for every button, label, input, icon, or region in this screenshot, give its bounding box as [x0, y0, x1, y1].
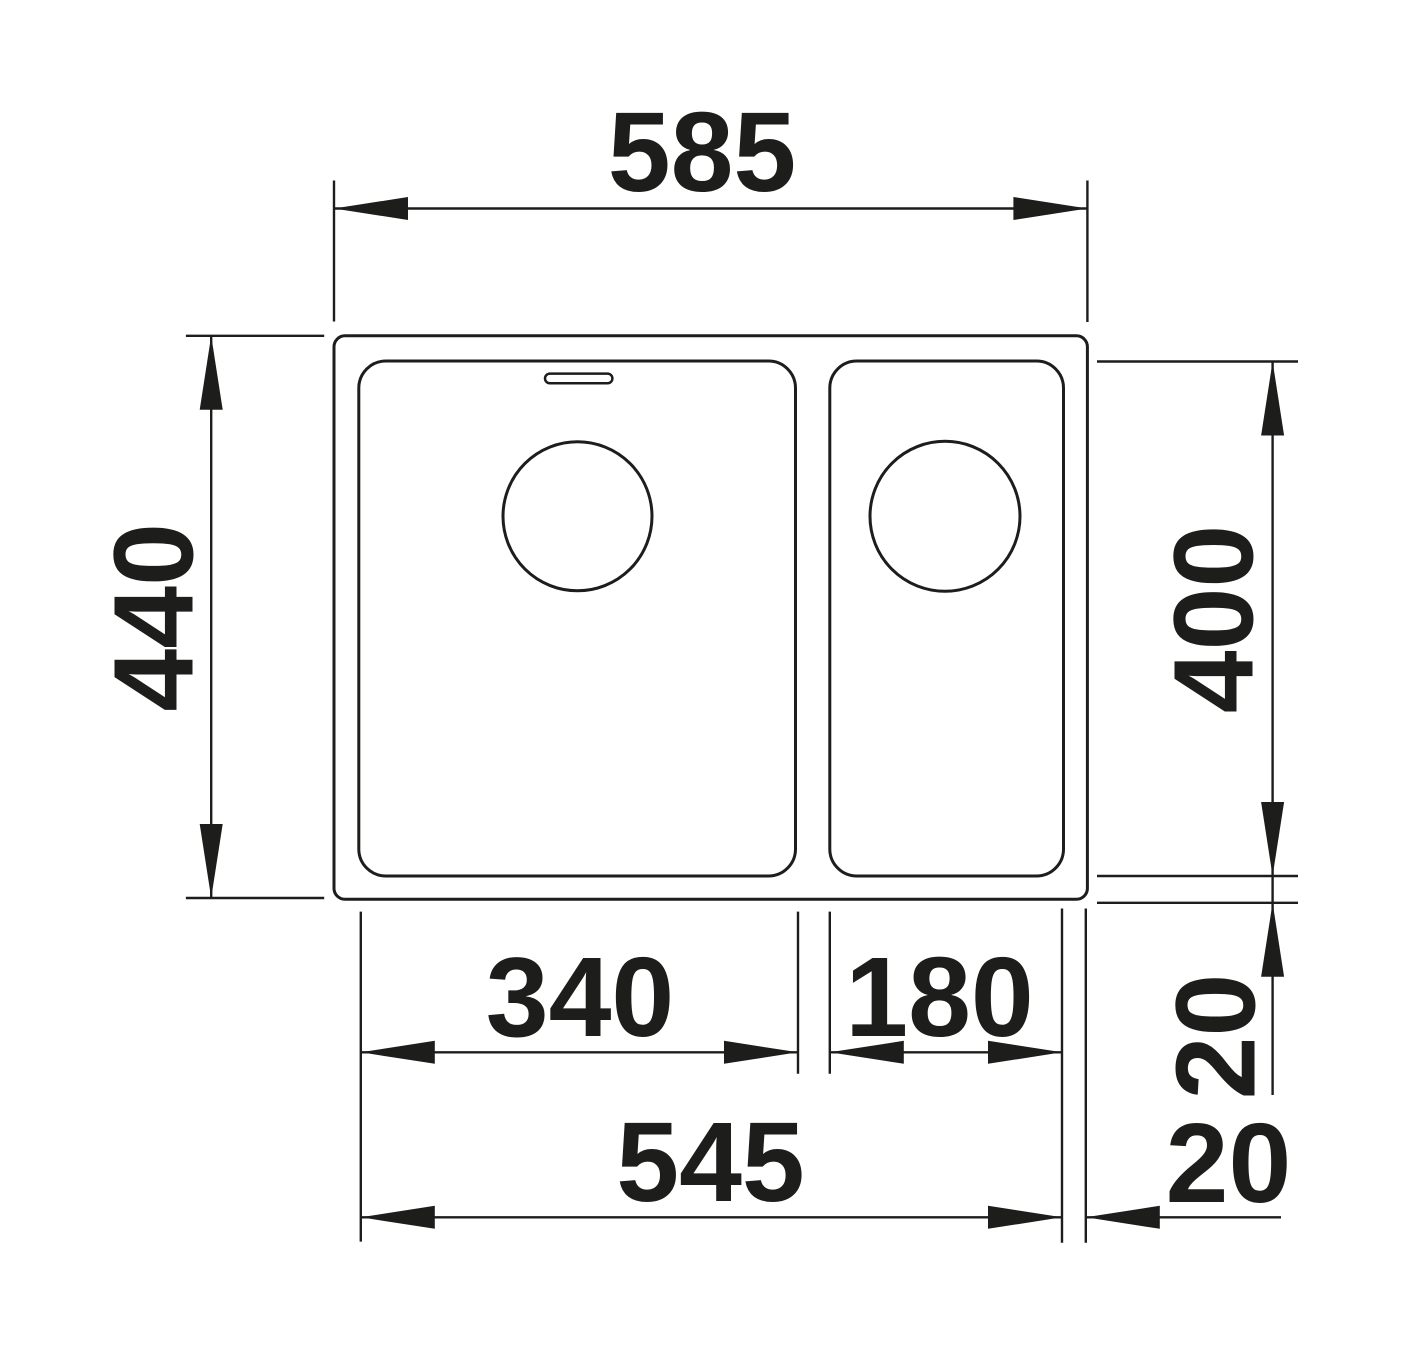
svg-text:400: 400	[1151, 525, 1277, 714]
svg-text:585: 585	[608, 89, 797, 215]
svg-text:340: 340	[486, 934, 675, 1060]
svg-text:20: 20	[1166, 1100, 1292, 1226]
svg-text:440: 440	[91, 523, 217, 712]
svg-text:545: 545	[616, 1099, 805, 1225]
svg-text:180: 180	[845, 934, 1034, 1060]
svg-text:20: 20	[1153, 974, 1279, 1100]
